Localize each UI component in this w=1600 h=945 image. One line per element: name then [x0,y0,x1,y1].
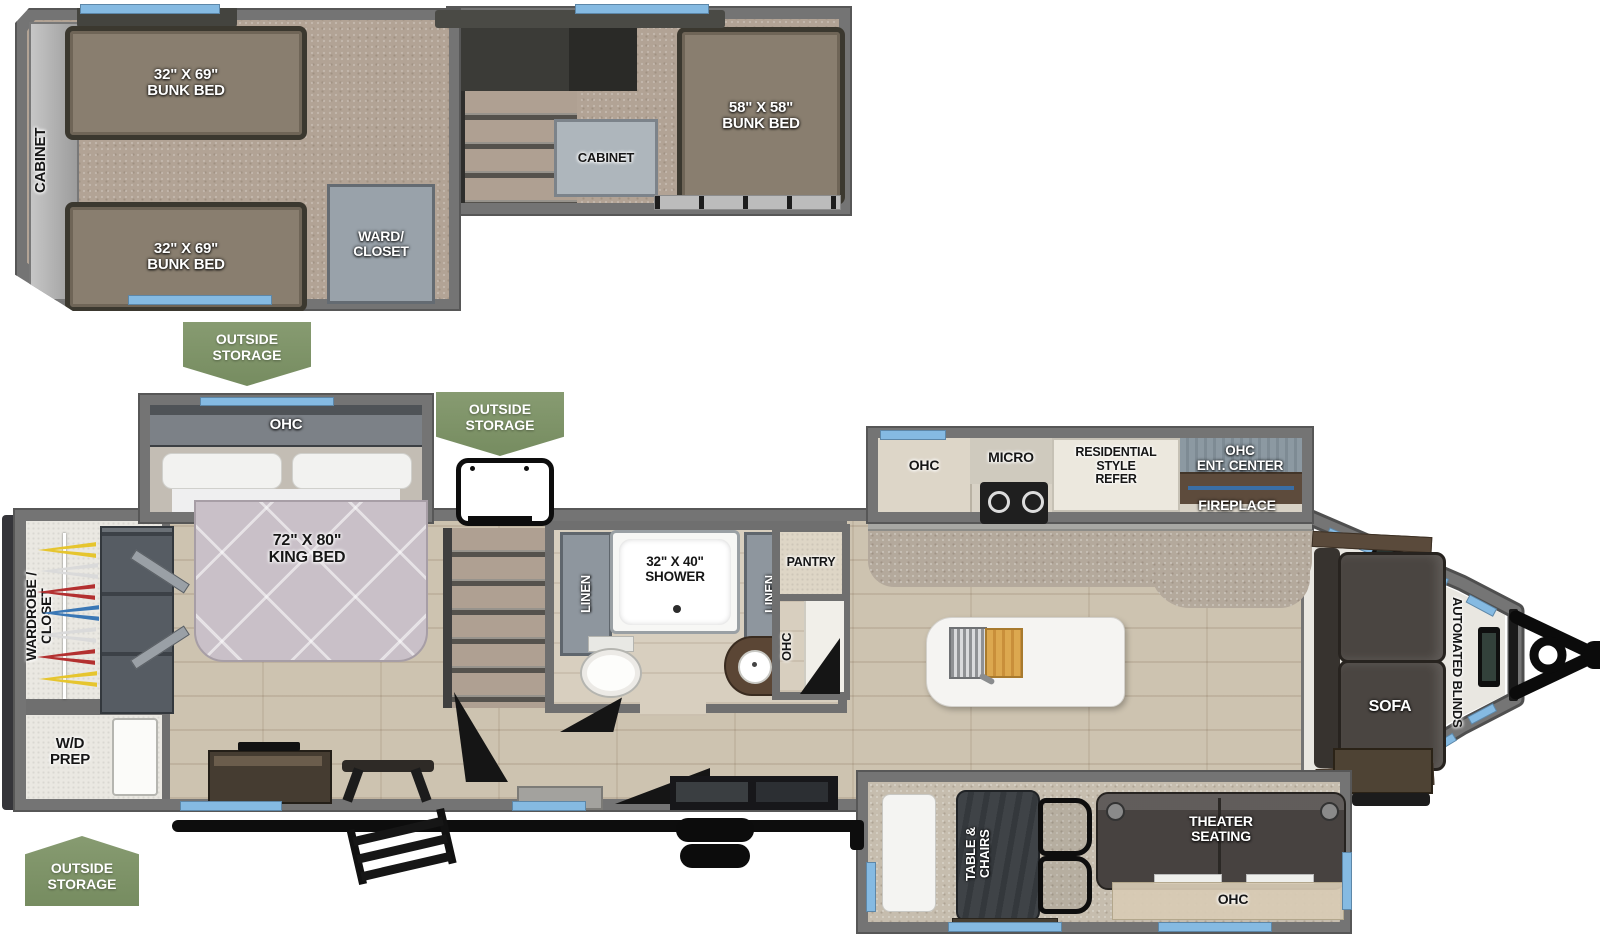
kitchen-ohc-cabinet [878,438,972,512]
microwave-label: MICRO [974,450,1048,465]
loft-ward-closet-label: WARD/ CLOSET [353,229,409,259]
wd-prep-label: W/D PREP [30,736,110,768]
shower-drain [673,605,681,613]
exterior-tv-base [468,516,532,523]
dinette-slide: TABLE & CHAIRS THEATER SEATING OHC [858,772,1350,932]
table-chairs-label: TABLE & CHAIRS [964,798,1028,910]
outside-storage-badge: OUTSIDE STORAGE [183,322,311,386]
sofa-cushion [1338,552,1446,663]
kitchen-carpet-corner [1150,560,1310,608]
loft-bunk-rear: 58" X 58" BUNK BED [677,27,845,205]
bed-pillow [292,453,412,489]
outside-storage-badge: OUTSIDE STORAGE [25,836,139,906]
loft-opening-dark [569,19,637,91]
kitchen-ohc-column-label: OHC [780,610,804,684]
pantry-label: PANTRY [780,556,842,570]
entry-door-panel [756,782,828,802]
bedroom-tv [238,742,300,751]
king-bed [194,500,428,662]
window [880,430,946,440]
loft-bunk-bottom-label: 32" X 69" BUNK BED [147,241,225,273]
sofa-label: SOFA [1350,698,1430,715]
wardrobe-closet-label: WARDROBE / CLOSET [24,540,60,692]
dinette-chair [1038,798,1092,856]
entry-steps [676,818,754,870]
cutting-board [985,628,1023,678]
burner [1022,491,1044,513]
rv-floorplan: CABINET 58" X 58" BUNK BED CABINET 32" X… [0,0,1600,945]
window [80,4,220,14]
exterior-tv-dot [524,466,529,471]
dresser-top [214,756,322,766]
island-sink [949,627,987,679]
bed-pillow [162,453,282,489]
window [128,295,272,305]
window [1158,922,1272,932]
theater-seating-label: THEATER SEATING [1156,814,1286,844]
cupholder [1320,802,1339,821]
entry-door-panel [676,782,748,802]
loft-bunk-rear-label: 58" X 58" BUNK BED [722,100,800,132]
dinette-chair [1038,856,1092,914]
stair-rail [443,528,452,708]
kitchen-island [926,617,1125,707]
kitchen-ohc-label: OHC [888,458,960,473]
loft-cabinet-left-label: CABINET [33,78,75,243]
dinette-bench [882,794,936,912]
awning-end [850,820,864,850]
bathroom-sink [738,650,772,684]
bathroom-door-gap [640,698,706,716]
step [680,844,750,868]
exterior-tv-dot [470,466,475,471]
loft-bunk-top: 32" X 69" BUNK BED [65,26,307,140]
outside-storage-label: OUTSIDE STORAGE [213,331,282,363]
window [575,4,709,14]
loft-bunk-top-label: 32" X 69" BUNK BED [147,67,225,99]
living-ohc-label: OHC [1198,892,1268,907]
fireplace-label: FIREPLACE [1172,498,1302,513]
main-staircase [452,528,555,708]
bedroom-dresser [208,750,332,804]
bathroom-faucet [752,662,757,667]
stove [980,482,1048,524]
step [676,818,754,842]
loft-room-bunks: CABINET 32" X 69" BUNK BED 32" X 69" BUN… [15,8,461,311]
shower: 32" X 40" SHOWER [610,530,740,634]
bedroom-ohc-label: OHC [246,417,326,433]
loft-cabinet-mid: CABINET [554,119,658,197]
awning-rail [172,820,862,832]
loft-railing [654,195,841,210]
ent-center-label: OHC ENT. CENTER [1178,444,1302,473]
shower-label: 32" X 40" SHOWER [621,555,729,584]
corner-bench [1352,793,1430,806]
toilet [580,648,642,698]
window [948,922,1062,932]
window [1342,852,1352,910]
cupholder [1106,802,1125,821]
burner [988,491,1010,513]
king-bed-label: 72" X 80" KING BED [232,532,382,567]
washer-dryer-space [112,718,158,796]
outside-storage-badge: OUTSIDE STORAGE [436,392,564,456]
window [866,862,876,912]
loft-ward-closet: WARD/ CLOSET [327,184,435,304]
loft-cabinet-mid-label: CABINET [578,151,634,165]
loft-room-rear: CABINET 58" X 58" BUNK BED [448,8,850,214]
automated-blinds-label: AUTOMATED BLINDS [1444,578,1464,746]
window [512,801,586,811]
window [180,801,282,811]
pantry-wall [780,594,842,601]
outside-storage-label: OUTSIDE STORAGE [48,860,117,892]
outside-storage-label: OUTSIDE STORAGE [466,401,535,433]
ent-center-accent [1188,486,1294,490]
sofa-back [1314,548,1340,768]
entry-door [670,776,838,810]
linen-left-label: LINEN [579,575,593,613]
refrigerator-label: RESIDENTIAL STYLE REFER [1056,446,1176,487]
window [200,397,334,406]
